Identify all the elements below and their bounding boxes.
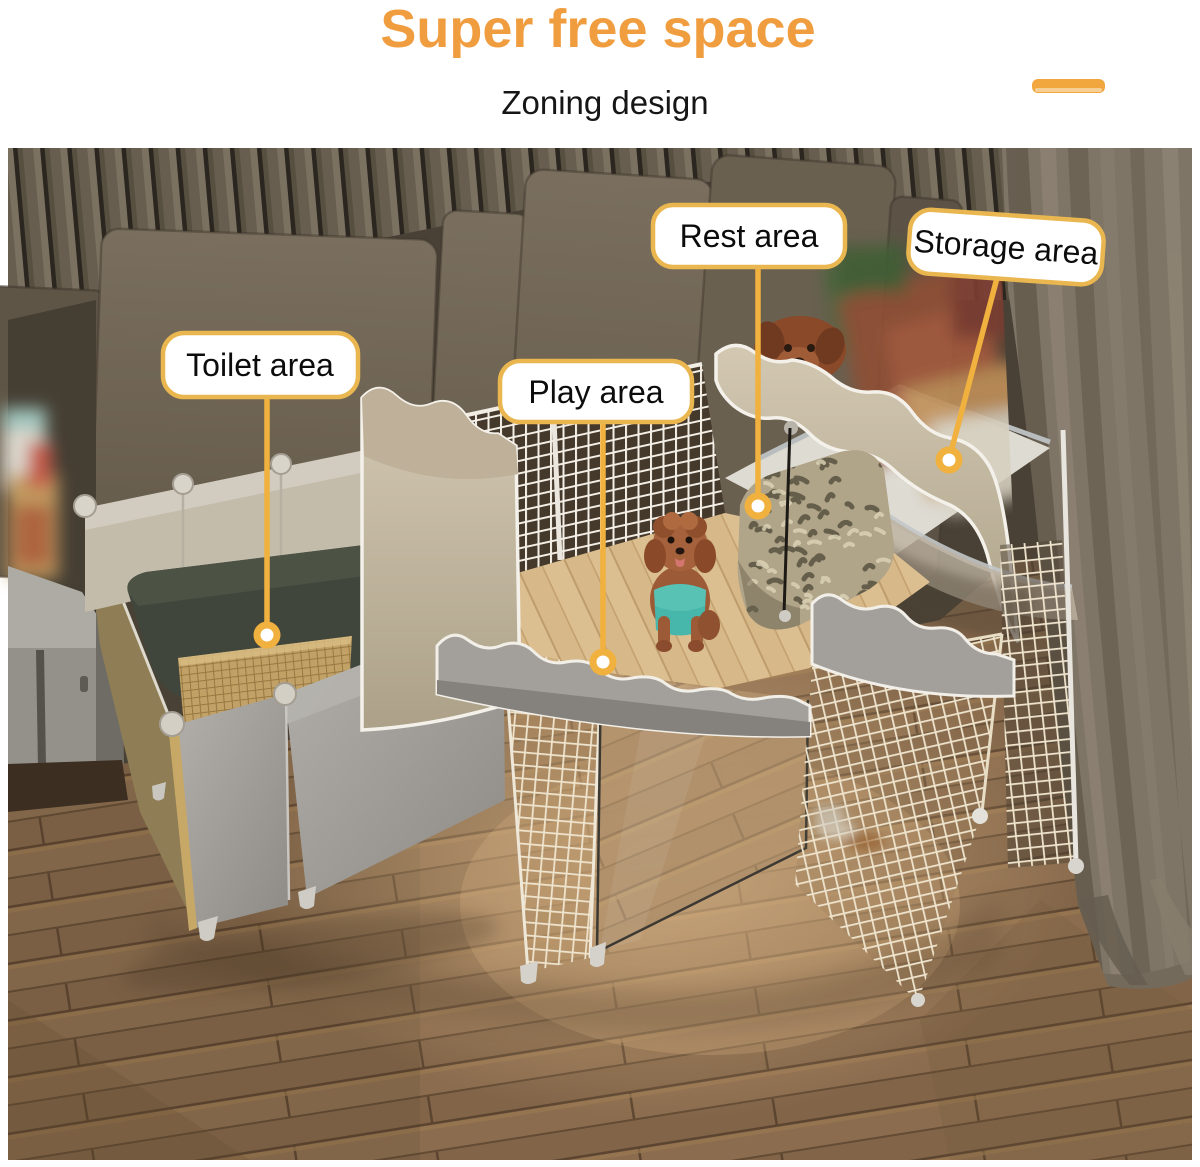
svg-text:Super free space: Super free space	[380, 0, 815, 59]
svg-text:Rest area: Rest area	[680, 218, 819, 254]
svg-text:Toilet area: Toilet area	[186, 347, 334, 383]
svg-text:Zoning design: Zoning design	[501, 84, 708, 121]
svg-text:Play area: Play area	[528, 374, 663, 410]
